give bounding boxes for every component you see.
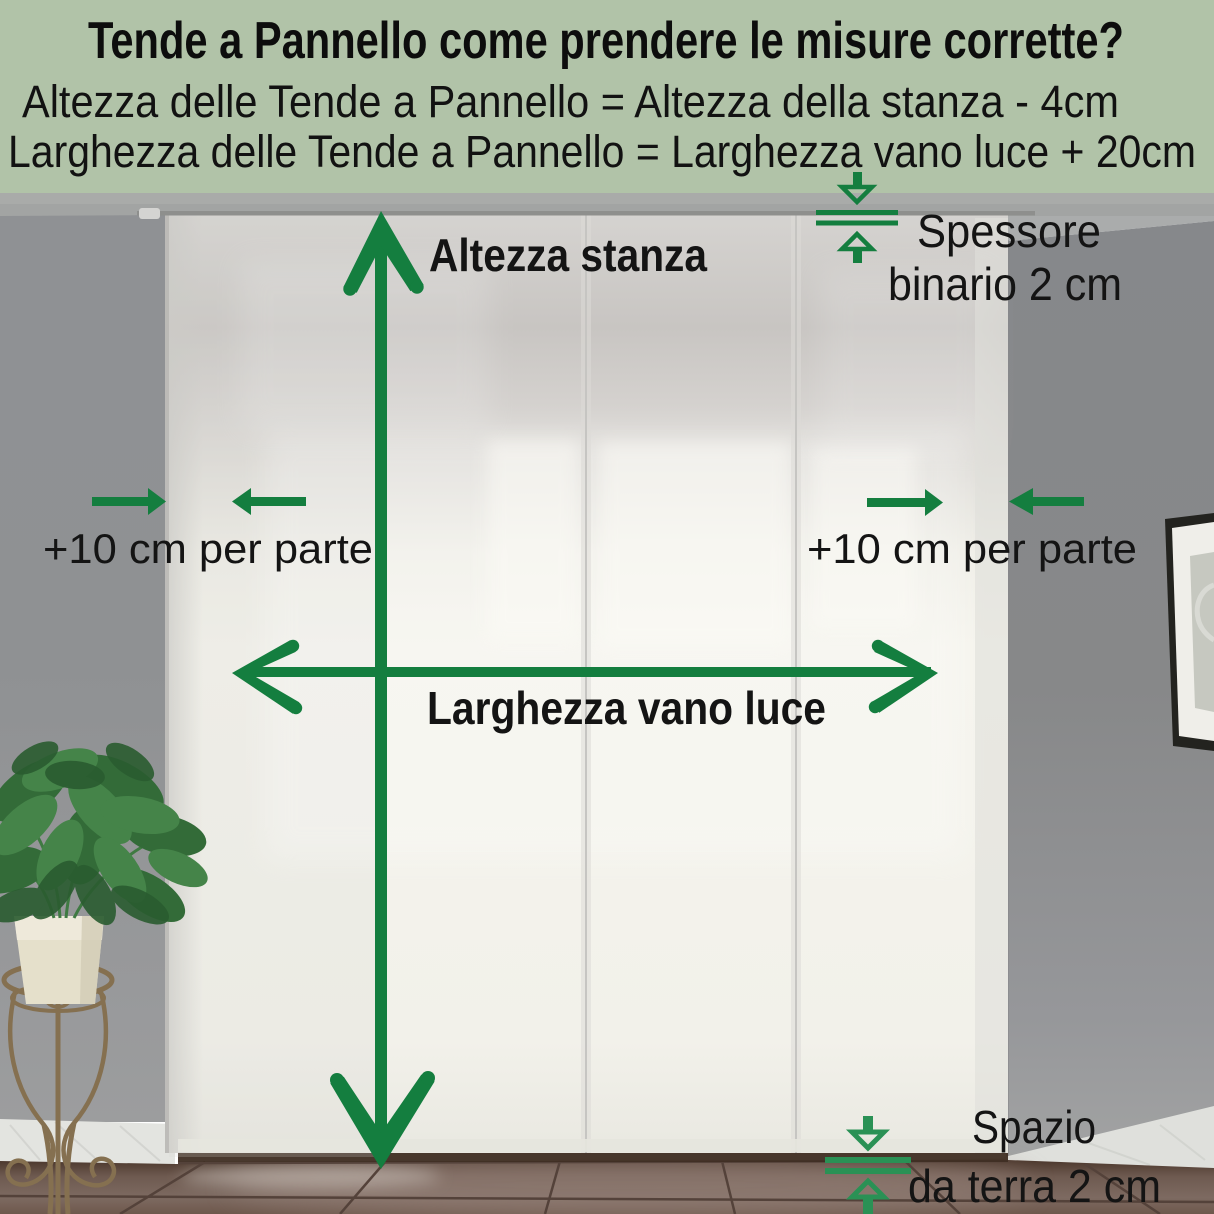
svg-text:+10 cm per parte: +10 cm per parte bbox=[43, 525, 373, 572]
svg-text:+10 cm per parte: +10 cm per parte bbox=[807, 525, 1137, 572]
svg-text:Spessore: Spessore bbox=[917, 205, 1101, 257]
svg-text:Tende a Pannello come prendere: Tende a Pannello come prendere le misure… bbox=[88, 12, 1124, 70]
svg-text:Spazio: Spazio bbox=[972, 1101, 1096, 1153]
svg-text:da terra 2 cm: da terra 2 cm bbox=[908, 1160, 1161, 1212]
svg-text:Altezza stanza: Altezza stanza bbox=[429, 229, 707, 281]
svg-text:Altezza delle Tende a Pannello: Altezza delle Tende a Pannello = Altezza… bbox=[22, 76, 1119, 127]
svg-text:Larghezza vano luce: Larghezza vano luce bbox=[427, 682, 826, 734]
svg-text:binario 2 cm: binario 2 cm bbox=[888, 258, 1122, 310]
svg-text:Larghezza delle Tende a Pannel: Larghezza delle Tende a Pannello = Largh… bbox=[8, 126, 1196, 177]
